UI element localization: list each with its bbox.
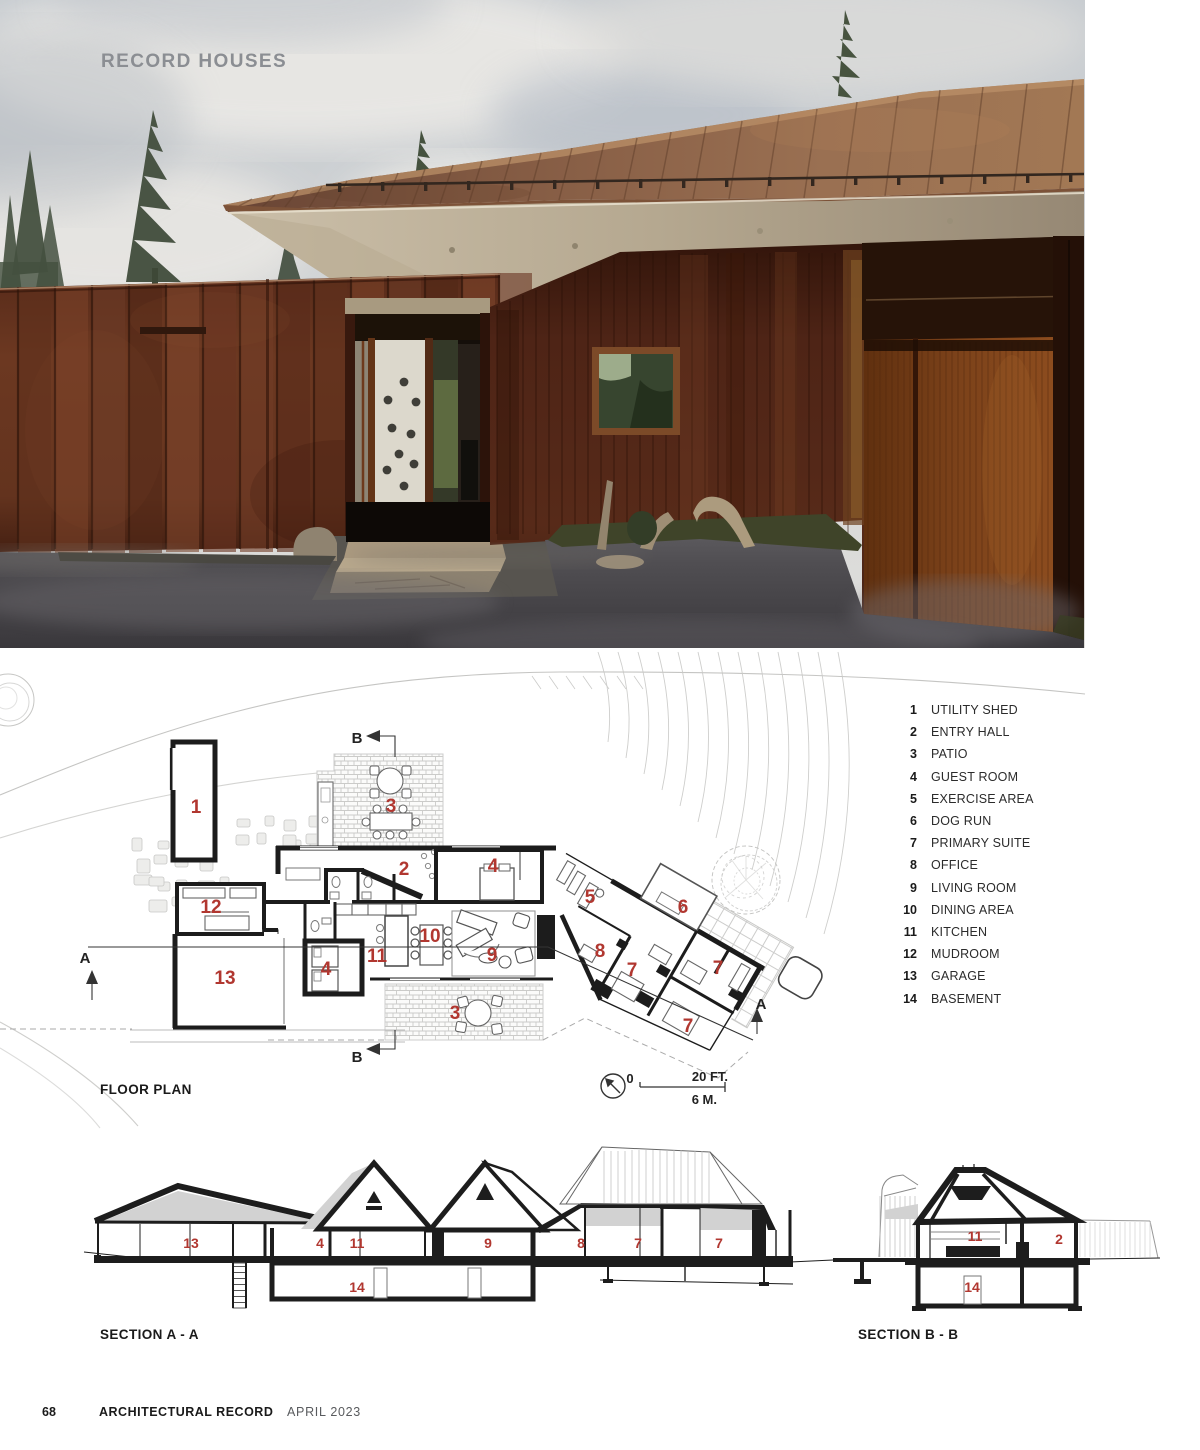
svg-text:A: A <box>80 950 91 967</box>
svg-text:3: 3 <box>386 796 397 817</box>
svg-text:8: 8 <box>595 941 606 962</box>
svg-text:11: 11 <box>968 1228 983 1244</box>
svg-text:12: 12 <box>200 897 221 918</box>
svg-text:B: B <box>352 730 363 747</box>
svg-text:7: 7 <box>627 960 638 981</box>
svg-text:4: 4 <box>488 856 499 877</box>
svg-text:A: A <box>756 996 767 1013</box>
svg-text:14: 14 <box>964 1279 980 1295</box>
svg-text:7: 7 <box>715 1235 723 1251</box>
svg-text:1: 1 <box>191 797 202 818</box>
svg-text:10: 10 <box>419 926 440 947</box>
svg-text:8: 8 <box>577 1235 585 1251</box>
svg-text:5: 5 <box>585 887 596 908</box>
svg-text:7: 7 <box>683 1016 694 1037</box>
svg-text:7: 7 <box>634 1235 642 1251</box>
svg-text:4: 4 <box>316 1235 324 1251</box>
svg-text:14: 14 <box>349 1279 365 1295</box>
svg-text:6: 6 <box>678 897 689 918</box>
svg-text:B: B <box>352 1049 363 1066</box>
svg-text:11: 11 <box>350 1235 365 1251</box>
svg-text:3: 3 <box>450 1003 461 1024</box>
svg-text:2: 2 <box>399 859 410 880</box>
svg-text:9: 9 <box>484 1235 492 1251</box>
svg-text:13: 13 <box>214 968 235 989</box>
svg-text:4: 4 <box>321 959 332 980</box>
svg-text:13: 13 <box>183 1235 199 1251</box>
svg-text:20 FT.: 20 FT. <box>692 1069 728 1084</box>
svg-text:6 M.: 6 M. <box>692 1092 717 1107</box>
svg-text:0: 0 <box>626 1071 633 1086</box>
svg-text:2: 2 <box>1055 1231 1063 1247</box>
svg-text:9: 9 <box>487 945 498 966</box>
svg-text:7: 7 <box>713 958 724 979</box>
svg-text:11: 11 <box>367 946 388 967</box>
